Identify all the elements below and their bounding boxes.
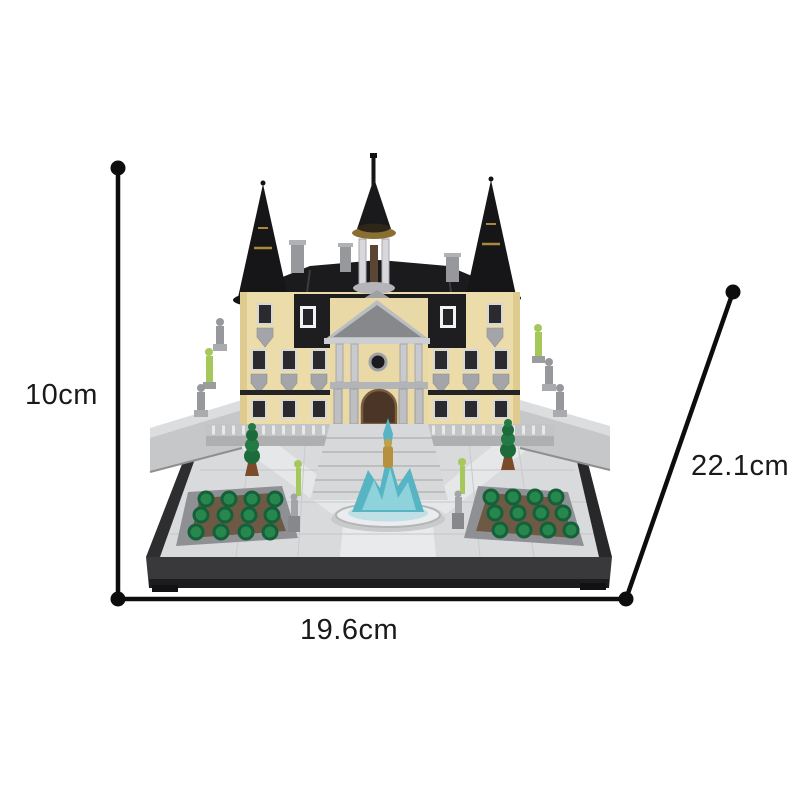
height-dimension-line: [111, 161, 126, 607]
product-dimension-figure: 10cm 19.6cm 22.1cm: [0, 0, 800, 800]
width-label: 19.6cm: [300, 616, 398, 645]
dimension-endpoint-dot: [111, 161, 126, 176]
depth-label: 22.1cm: [691, 452, 789, 481]
central-spire: [352, 153, 396, 294]
left-spire: [233, 181, 293, 308]
right-spire: [461, 177, 521, 306]
portico: [324, 290, 430, 424]
castle-model: [146, 153, 612, 592]
garden-bed-right: [464, 486, 584, 546]
height-label: 10cm: [25, 381, 98, 410]
width-dimension-line: [118, 592, 634, 607]
depth-dimension-line: [626, 285, 741, 600]
garden-bed-left: [176, 486, 298, 546]
castle-model-illustration: [0, 0, 800, 800]
dimension-endpoint-dot: [726, 285, 741, 300]
